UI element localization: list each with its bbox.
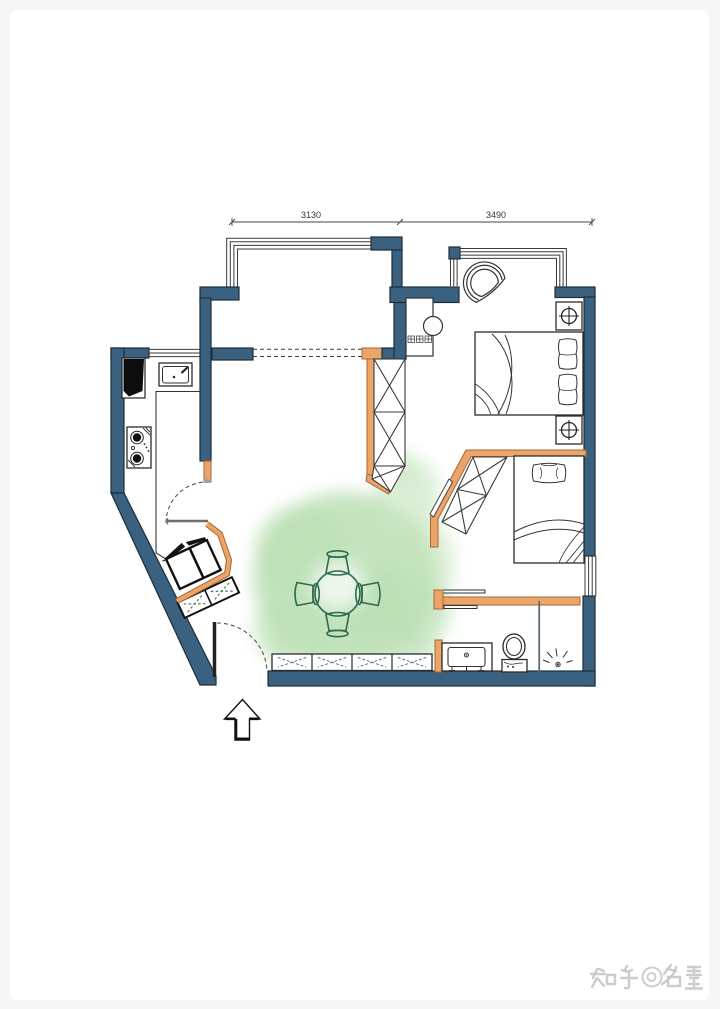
svg-text:3490: 3490	[486, 210, 506, 220]
svg-text:3130: 3130	[301, 210, 321, 220]
